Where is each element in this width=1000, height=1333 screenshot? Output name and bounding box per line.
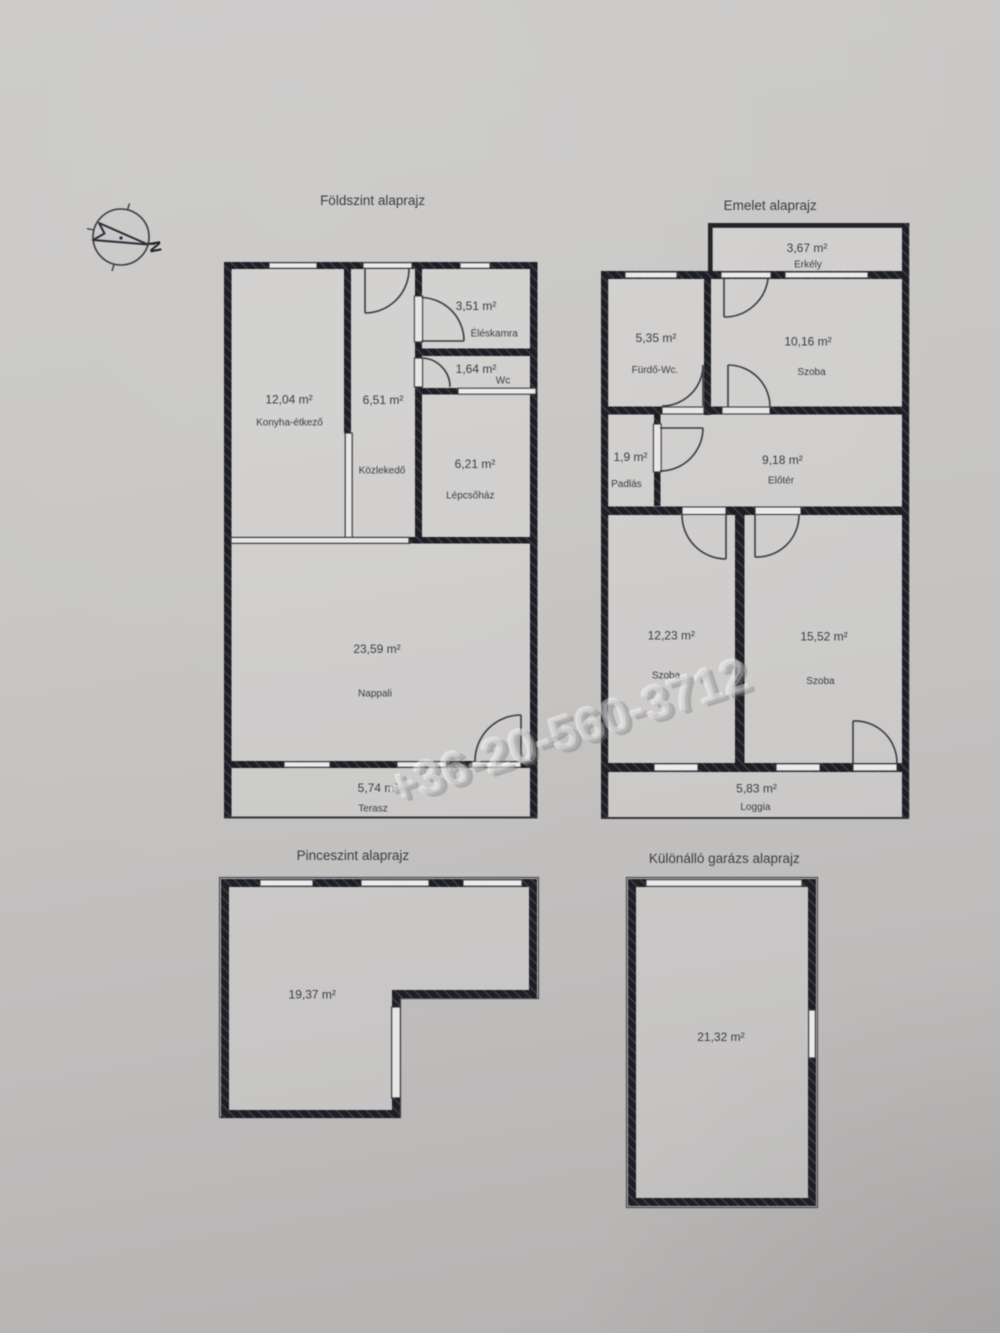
svg-text:1,64 m²: 1,64 m² (456, 362, 497, 376)
svg-text:5,83 m²: 5,83 m² (736, 782, 777, 796)
svg-text:Különálló garázs alaprajz: Különálló garázs alaprajz (649, 851, 800, 866)
svg-text:Konyha-étkező: Konyha-étkező (256, 418, 323, 429)
svg-text:Közlekedő: Közlekedő (359, 466, 406, 477)
svg-text:N: N (145, 240, 164, 254)
svg-text:3,67 m²: 3,67 m² (787, 241, 828, 255)
svg-text:21,32 m²: 21,32 m² (697, 1030, 744, 1044)
svg-text:12,04 m²: 12,04 m² (265, 392, 312, 406)
svg-text:Wc: Wc (496, 376, 510, 387)
svg-text:6,51 m²: 6,51 m² (363, 393, 404, 407)
svg-text:5,35 m²: 5,35 m² (636, 331, 677, 345)
svg-text:23,59 m²: 23,59 m² (353, 642, 400, 656)
svg-text:15,52 m²: 15,52 m² (800, 630, 847, 644)
svg-text:Előtér: Előtér (768, 476, 795, 487)
svg-text:Szoba: Szoba (806, 676, 835, 687)
svg-text:Padlás: Padlás (611, 479, 642, 490)
svg-text:Földszint alaprajz: Földszint alaprajz (320, 193, 425, 208)
svg-text:6,21 m²: 6,21 m² (455, 457, 496, 471)
svg-text:Erkély: Erkély (794, 260, 822, 271)
svg-text:Terasz: Terasz (358, 804, 387, 815)
svg-text:Éléskamra: Éléskamra (471, 327, 519, 340)
svg-text:19,37 m²: 19,37 m² (289, 988, 336, 1002)
svg-text:Pinceszint alaprajz: Pinceszint alaprajz (297, 848, 410, 863)
svg-text:Emelet alaprajz: Emelet alaprajz (724, 198, 817, 213)
svg-text:Lépcsőház: Lépcsőház (446, 491, 494, 502)
svg-text:Nappali: Nappali (358, 689, 392, 700)
svg-text:Loggia: Loggia (740, 802, 770, 813)
svg-text:Fürdő-Wc.: Fürdő-Wc. (632, 365, 679, 376)
svg-text:12,23 m²: 12,23 m² (648, 628, 695, 642)
svg-text:10,16 m²: 10,16 m² (784, 335, 831, 349)
svg-text:Szoba: Szoba (797, 367, 826, 378)
svg-text:1,9 m²: 1,9 m² (613, 450, 647, 464)
svg-text:3,51 m²: 3,51 m² (456, 299, 497, 313)
svg-text:9,18 m²: 9,18 m² (762, 453, 803, 467)
